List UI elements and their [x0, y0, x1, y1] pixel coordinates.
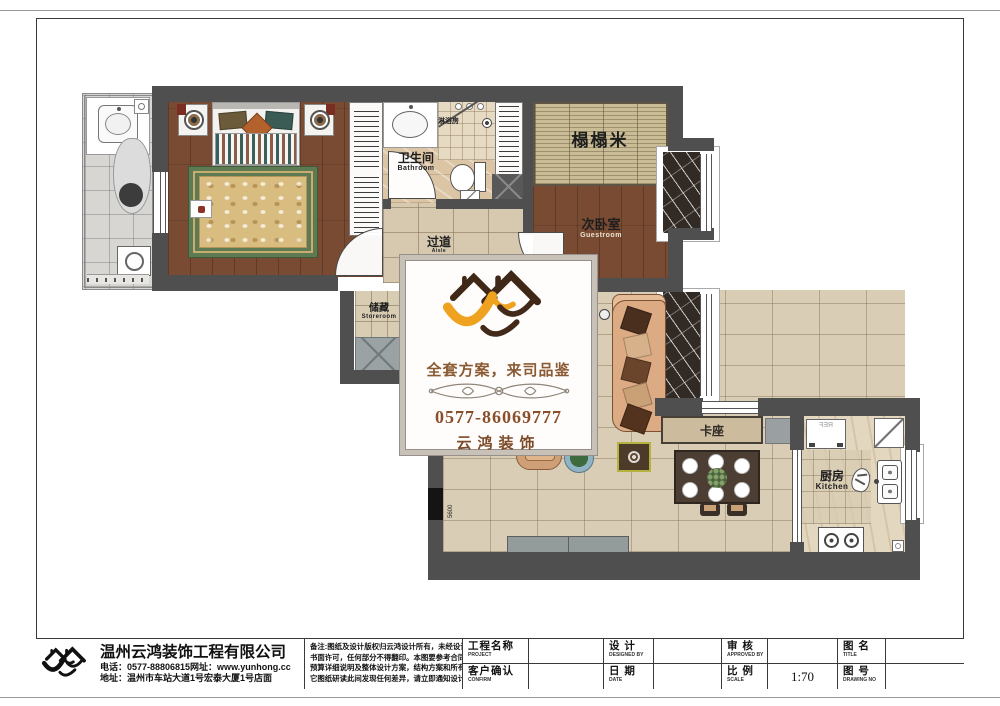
field-title-value [885, 639, 964, 664]
duct-shaft [492, 174, 525, 199]
ornament-divider-icon [424, 380, 574, 402]
sofa-marble-wall [663, 292, 700, 398]
wall-dining-top-a [655, 398, 703, 416]
wall-top [152, 86, 683, 102]
field-approver-label: 审 核APPROVED BY [721, 639, 767, 664]
dimension-label: 5600 [448, 505, 454, 518]
wall-right-mid [668, 235, 683, 292]
wardrobe [349, 102, 383, 236]
bed-blanket [215, 133, 297, 165]
floor-lamp [599, 309, 610, 320]
field-project-label: 工程名称PROJECT [462, 639, 528, 664]
room-label-bathroom: 卫生间 Bathroom [386, 152, 446, 173]
sheet-top-rule [0, 10, 1000, 11]
field-date-value [653, 664, 721, 689]
toilet-bowl [450, 164, 475, 192]
field-confirm-label: 客户确认CONFIRM [462, 664, 528, 689]
wall-bedroom-bottom [152, 275, 338, 291]
bay-window [700, 154, 712, 231]
dining-table [674, 450, 760, 504]
wall-closet-tatami [523, 102, 533, 197]
hanging-laundry-tool [113, 138, 151, 214]
toiletry-1 [455, 103, 462, 110]
watermark-brand: 云鸿装饰 [405, 432, 592, 453]
side-table [617, 442, 651, 472]
field-scale-value: 1:70 [767, 664, 837, 689]
washing-machine [117, 246, 151, 276]
company-section: 温州云鸿装饰工程有限公司 电话：0577-88806815网址：www.yunh… [36, 639, 304, 689]
corner-counter [874, 418, 904, 448]
bed [212, 102, 300, 166]
wall-balcony-lower [152, 233, 168, 277]
field-drawingno-value [885, 664, 964, 689]
toiletry-3 [477, 103, 484, 110]
title-block: 温州云鸿装饰工程有限公司 电话：0577-88806815网址：www.yunh… [36, 638, 964, 688]
wall-kitchen-door-bottom [790, 542, 804, 554]
field-confirm-value [528, 664, 603, 689]
hall-closet [495, 102, 523, 175]
room-label-guest: 次卧室 Guestroom [565, 218, 637, 240]
floorplan-sheet: 5600 卡座 REF [0, 0, 1000, 706]
watermark-card: 全套方案，来司品鉴 0577-86069777 云鸿装饰 [400, 255, 597, 455]
watermark-slogan: 全套方案，来司品鉴 [405, 359, 592, 380]
kitchen-drain [892, 540, 904, 552]
notes-section: 备注:图纸及设计版权归云鸿设计所有，未经设计师 书面许可，任何部分不得翻印。本图… [304, 639, 462, 689]
gas-stove [818, 527, 864, 553]
wall-bath-bottom [436, 199, 523, 209]
field-date-label: 日 期DATE [603, 664, 653, 689]
company-address: 地址：温州市车站大道1号宏泰大厦1号店面 [100, 673, 291, 684]
field-designer-label: 设 计DESIGNED BY [603, 639, 653, 664]
wall-bottom [428, 552, 920, 580]
kitchen-sliding-door [792, 450, 802, 542]
bedside-tray [190, 200, 212, 218]
dining-chair-2 [727, 503, 747, 516]
shower-head [482, 118, 492, 128]
watermark-phone: 0577-86069777 [405, 407, 592, 428]
wall-kitchen-right-top [905, 398, 920, 452]
booth-label: 卡座 [700, 422, 724, 439]
dining-chair-1 [700, 503, 720, 516]
refrigerator: REF [806, 419, 846, 449]
room-label-kitchen: 厨房 Kitchen [806, 470, 858, 492]
room-label-storage: 储藏 Storeroom [358, 303, 400, 321]
living-window [700, 294, 712, 396]
room-label-aisle: 过道 Aisle [412, 236, 466, 255]
field-designer-value [653, 639, 721, 664]
company-name: 温州云鸿装饰工程有限公司 [100, 644, 291, 662]
company-logo-small-icon [40, 644, 94, 684]
shower-floor [438, 102, 495, 160]
company-logo-icon [438, 266, 560, 352]
balcony [82, 93, 155, 290]
booth-seat: 卡座 [661, 416, 763, 444]
pass-window [702, 401, 758, 414]
company-tel: 电话：0577-88806815网址：www.yunhong.cc [100, 662, 291, 673]
nightstand-right [304, 104, 334, 136]
kitchen-sink [877, 460, 902, 504]
wall-balcony-upper [152, 102, 168, 172]
field-approver-value [767, 639, 837, 664]
nightstand-left [178, 104, 208, 136]
soap-box [134, 99, 149, 114]
bay-window-sill [663, 152, 700, 233]
room-label-tatami: 榻榻米 [548, 132, 652, 151]
wall-bath-jamb [383, 199, 391, 209]
field-title-label: 图 名TITLE [837, 639, 885, 664]
field-scale-label: 比 例SCALE [721, 664, 767, 689]
sheet-bottom-rule [0, 697, 1000, 698]
wall-guest-left [523, 197, 533, 235]
kitchen-window [905, 450, 917, 520]
wall-kitchen-door-top [790, 416, 804, 450]
room-label-shower: 淋浴房 [438, 118, 459, 126]
booth-end-cabinet [765, 418, 792, 444]
wall-dining-top-b [758, 398, 920, 416]
balcony-door [153, 172, 166, 233]
field-project-value [528, 639, 603, 664]
wall-storage-bottom [340, 370, 402, 384]
bath-vanity [383, 102, 438, 148]
wall-bay-top [668, 138, 714, 151]
table-centerpiece [707, 468, 727, 488]
balcony-sill [87, 274, 149, 284]
toilet-tank [474, 162, 486, 192]
field-drawingno-label: 图 号DRAWING NO [837, 664, 885, 689]
storage-cabinet [355, 337, 402, 371]
living-left-column [428, 488, 443, 520]
